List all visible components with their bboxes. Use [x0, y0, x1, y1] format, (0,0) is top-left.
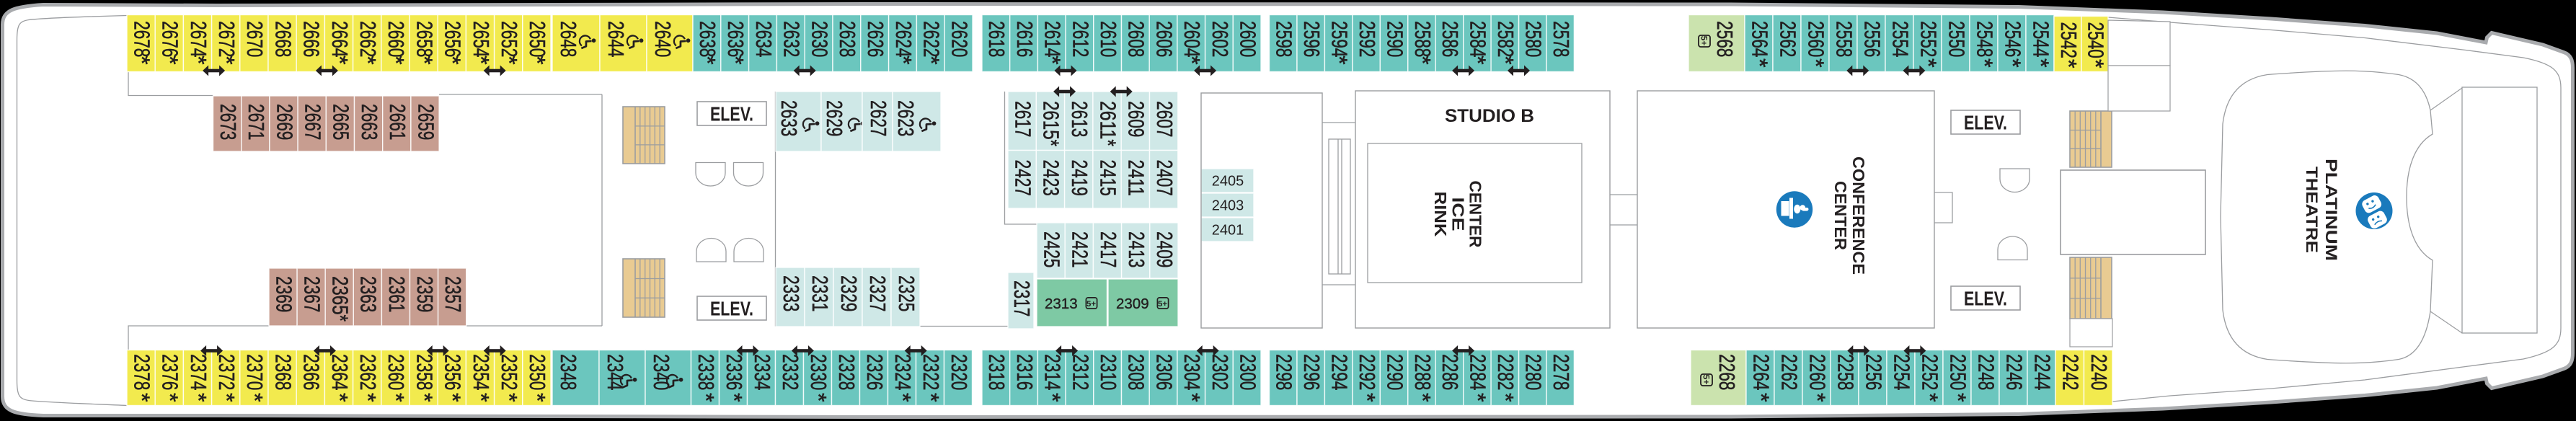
svg-text:*: *: [158, 393, 183, 402]
svg-text:2359: 2359: [412, 276, 438, 312]
svg-text:*: *: [158, 56, 183, 65]
svg-text:CENTER: CENTER: [1466, 181, 1485, 248]
svg-text:CONFERENCE: CONFERENCE: [1849, 156, 1868, 275]
svg-text:2620: 2620: [947, 21, 972, 57]
svg-text:2310: 2310: [1096, 354, 1121, 390]
svg-text:2632: 2632: [779, 21, 805, 57]
svg-text:2364: 2364: [327, 354, 353, 390]
svg-text:2334: 2334: [750, 354, 775, 390]
svg-text:2317: 2317: [1009, 280, 1035, 316]
svg-text:2290: 2290: [1382, 354, 1407, 390]
svg-text:2676: 2676: [158, 21, 183, 57]
svg-text:2659: 2659: [413, 104, 438, 140]
svg-text:2296: 2296: [1299, 354, 1324, 390]
svg-text:2325: 2325: [894, 275, 919, 311]
svg-text:2256: 2256: [1861, 354, 1886, 390]
svg-text:*: *: [919, 393, 944, 402]
svg-text:2365*: 2365*: [328, 276, 353, 322]
svg-text:2329: 2329: [836, 275, 862, 311]
svg-text:2309: 2309: [1116, 296, 1149, 312]
svg-text:2598: 2598: [1272, 21, 1297, 57]
svg-text:*: *: [1355, 393, 1380, 402]
svg-text:2419: 2419: [1067, 160, 1092, 196]
svg-text:5+: 5+: [1086, 300, 1096, 309]
svg-text:*: *: [384, 393, 409, 402]
svg-text:*: *: [2028, 58, 2053, 68]
svg-text:2258: 2258: [1833, 354, 1858, 390]
svg-text:2612: 2612: [1068, 21, 1093, 57]
svg-text:*: *: [497, 393, 522, 402]
svg-text:2403: 2403: [1212, 198, 1244, 214]
svg-text:2405: 2405: [1212, 174, 1244, 190]
svg-text:ELEV.: ELEV.: [710, 103, 753, 125]
svg-text:2558: 2558: [1831, 21, 1856, 57]
svg-text:2357: 2357: [441, 276, 466, 312]
svg-text:*: *: [129, 56, 154, 65]
svg-text:2672: 2672: [214, 21, 239, 57]
svg-text:2623: 2623: [893, 100, 919, 136]
svg-text:2667: 2667: [301, 104, 326, 140]
svg-text:2582: 2582: [1493, 21, 1518, 57]
svg-text:*: *: [441, 56, 466, 65]
svg-text:2322: 2322: [919, 354, 944, 390]
svg-text:2360: 2360: [384, 354, 409, 390]
svg-text:2328: 2328: [834, 354, 859, 390]
svg-text:2352: 2352: [497, 354, 522, 390]
svg-text:2244: 2244: [2030, 354, 2055, 390]
svg-text:STUDIO B: STUDIO B: [1445, 106, 1534, 126]
svg-text:*: *: [1179, 56, 1205, 65]
svg-text:2320: 2320: [947, 354, 972, 390]
svg-text:2664: 2664: [327, 21, 353, 57]
svg-text:2614: 2614: [1040, 21, 1066, 57]
svg-text:2627: 2627: [866, 100, 891, 136]
svg-text:2552: 2552: [1916, 21, 1941, 57]
svg-text:2240: 2240: [2086, 354, 2112, 390]
svg-text:2562: 2562: [1775, 21, 1800, 57]
svg-text:2331: 2331: [807, 275, 833, 311]
svg-text:*: *: [1493, 56, 1518, 65]
svg-text:ELEV.: ELEV.: [1964, 112, 2007, 134]
svg-text:*: *: [1917, 393, 1942, 402]
svg-text:2421: 2421: [1068, 231, 1093, 267]
svg-text:*: *: [1493, 393, 1518, 402]
svg-text:2356: 2356: [441, 354, 466, 390]
svg-text:2611*: 2611*: [1095, 101, 1120, 146]
svg-text:2669: 2669: [272, 104, 297, 140]
svg-text:2610: 2610: [1096, 21, 1121, 57]
svg-text:*: *: [469, 56, 494, 65]
svg-text:2300: 2300: [1236, 354, 1261, 390]
svg-text:2592: 2592: [1355, 21, 1380, 57]
svg-text:2542: 2542: [2056, 22, 2081, 58]
svg-text:2613: 2613: [1067, 101, 1092, 137]
svg-text:2401: 2401: [1212, 223, 1244, 239]
svg-text:2656: 2656: [441, 21, 466, 57]
svg-text:2652: 2652: [497, 21, 522, 57]
svg-text:2302: 2302: [1208, 354, 1233, 390]
svg-text:2670: 2670: [242, 21, 267, 57]
svg-text:2678: 2678: [129, 21, 154, 57]
svg-text:*: *: [525, 56, 550, 65]
svg-text:2427: 2427: [1011, 160, 1036, 196]
svg-text:2578: 2578: [1549, 21, 1574, 57]
svg-text:2361: 2361: [384, 276, 410, 312]
svg-text:2333: 2333: [779, 275, 804, 311]
svg-text:2606: 2606: [1151, 21, 1177, 57]
svg-text:2363: 2363: [356, 276, 381, 312]
svg-text:2248: 2248: [1973, 354, 1999, 390]
svg-text:2673: 2673: [216, 104, 241, 140]
svg-text:2292: 2292: [1355, 354, 1380, 390]
svg-text:2246: 2246: [2001, 354, 2027, 390]
svg-text:2638: 2638: [695, 21, 720, 57]
svg-text:2312: 2312: [1068, 354, 1093, 390]
svg-text:2633: 2633: [776, 100, 802, 136]
svg-text:*: *: [1748, 393, 1774, 402]
svg-text:2618: 2618: [984, 21, 1009, 57]
svg-text:2634: 2634: [751, 21, 776, 57]
svg-text:2608: 2608: [1124, 21, 1149, 57]
svg-text:*: *: [469, 393, 494, 402]
svg-text:2306: 2306: [1151, 354, 1177, 390]
svg-text:2556: 2556: [1859, 21, 1885, 57]
svg-text:2600: 2600: [1236, 21, 1261, 57]
svg-text:*: *: [2083, 59, 2108, 68]
svg-text:2376: 2376: [158, 354, 183, 390]
svg-text:2596: 2596: [1299, 21, 1324, 57]
svg-text:*: *: [1410, 56, 1435, 65]
svg-text:2350: 2350: [525, 354, 550, 390]
svg-text:2313: 2313: [1045, 296, 1078, 312]
svg-text:2588: 2588: [1410, 21, 1435, 57]
svg-text:2367: 2367: [300, 276, 325, 312]
svg-text:2298: 2298: [1272, 354, 1297, 390]
svg-text:2264: 2264: [1748, 354, 1774, 390]
svg-text:2423: 2423: [1039, 160, 1064, 196]
svg-text:2252: 2252: [1917, 354, 1942, 390]
svg-text:2654: 2654: [469, 21, 494, 57]
svg-text:*: *: [722, 393, 747, 402]
svg-text:*: *: [327, 393, 353, 402]
svg-text:2318: 2318: [984, 354, 1009, 390]
svg-text:2316: 2316: [1012, 354, 1037, 390]
svg-text:2324: 2324: [890, 354, 916, 390]
svg-text:*: *: [129, 393, 154, 402]
svg-text:ICE: ICE: [1448, 198, 1467, 231]
svg-text:2340: 2340: [649, 354, 674, 390]
svg-text:*: *: [214, 393, 239, 402]
svg-text:2362: 2362: [355, 354, 381, 390]
svg-text:2609: 2609: [1124, 101, 1149, 137]
svg-text:2660: 2660: [384, 21, 409, 57]
svg-text:2668: 2668: [270, 21, 296, 57]
svg-text:2348: 2348: [556, 354, 581, 390]
svg-text:2314: 2314: [1040, 354, 1066, 390]
svg-text:*: *: [1945, 393, 1970, 402]
svg-text:2374: 2374: [186, 354, 211, 390]
svg-text:2330: 2330: [806, 354, 831, 390]
svg-text:*: *: [1327, 56, 1352, 65]
svg-text:2284: 2284: [1466, 354, 1491, 390]
svg-text:*: *: [412, 56, 437, 65]
svg-text:ELEV.: ELEV.: [1964, 288, 2007, 310]
svg-text:2607: 2607: [1152, 101, 1177, 137]
svg-text:*: *: [1803, 58, 1828, 68]
svg-text:CENTER: CENTER: [1831, 181, 1850, 250]
svg-text:*: *: [806, 393, 831, 402]
svg-text:2590: 2590: [1382, 21, 1407, 57]
svg-text:*: *: [441, 393, 466, 402]
svg-text:2616: 2616: [1012, 21, 1037, 57]
svg-text:*: *: [355, 393, 381, 402]
svg-text:2648: 2648: [556, 21, 581, 57]
svg-text:2617: 2617: [1011, 101, 1036, 137]
svg-text:2640: 2640: [650, 21, 676, 57]
svg-text:2278: 2278: [1549, 354, 1574, 390]
svg-text:2370: 2370: [242, 354, 267, 390]
svg-text:2417: 2417: [1096, 231, 1121, 267]
svg-text:2326: 2326: [862, 354, 888, 390]
svg-text:2286: 2286: [1438, 354, 1463, 390]
svg-text:2604: 2604: [1179, 21, 1205, 57]
svg-text:2548: 2548: [1972, 21, 1997, 57]
svg-text:2425: 2425: [1039, 231, 1064, 267]
svg-text:*: *: [1972, 58, 1997, 68]
svg-text:*: *: [327, 56, 353, 65]
svg-text:5+: 5+: [1701, 375, 1711, 385]
svg-text:2327: 2327: [865, 275, 890, 311]
svg-text:2663: 2663: [357, 104, 382, 140]
svg-text:2674: 2674: [186, 21, 211, 57]
svg-text:2409: 2409: [1152, 231, 1177, 267]
svg-text:2666: 2666: [299, 21, 324, 57]
svg-text:*: *: [186, 393, 211, 402]
svg-text:2661: 2661: [385, 104, 410, 140]
svg-text:2671: 2671: [244, 104, 269, 140]
svg-text:2288: 2288: [1410, 354, 1435, 390]
svg-text:2658: 2658: [412, 21, 437, 57]
svg-text:*: *: [1747, 58, 1772, 68]
svg-text:*: *: [1040, 393, 1066, 402]
svg-text:2338: 2338: [694, 354, 719, 390]
svg-text:2554: 2554: [1887, 21, 1913, 57]
svg-text:*: *: [919, 56, 944, 65]
svg-text:*: *: [1179, 393, 1205, 402]
svg-text:ELEV.: ELEV.: [710, 298, 753, 320]
svg-text:*: *: [497, 56, 522, 65]
svg-text:2407: 2407: [1152, 160, 1177, 196]
svg-text:2546: 2546: [2000, 21, 2025, 57]
svg-text:2254: 2254: [1889, 354, 1914, 390]
svg-text:2560: 2560: [1803, 21, 1828, 57]
svg-text:*: *: [694, 393, 719, 402]
svg-text:*: *: [2000, 58, 2025, 68]
svg-text:2366: 2366: [299, 354, 324, 390]
svg-text:2294: 2294: [1327, 354, 1352, 390]
svg-text:2344: 2344: [603, 354, 628, 390]
svg-text:2564: 2564: [1747, 21, 1772, 57]
svg-text:*: *: [1466, 56, 1491, 65]
svg-text:2550: 2550: [1944, 21, 1969, 57]
svg-text:2260: 2260: [1805, 354, 1830, 390]
svg-text:2378: 2378: [129, 354, 154, 390]
svg-text:2629: 2629: [822, 100, 847, 136]
svg-text:THEATRE: THEATRE: [2303, 167, 2321, 253]
svg-text:2602: 2602: [1208, 21, 1233, 57]
svg-text:*: *: [695, 56, 720, 65]
svg-text:2304: 2304: [1179, 354, 1205, 390]
svg-text:2411: 2411: [1124, 160, 1149, 196]
svg-text:*: *: [384, 56, 409, 65]
svg-text:2544: 2544: [2028, 21, 2053, 57]
svg-text:2650: 2650: [525, 21, 550, 57]
svg-text:2262: 2262: [1776, 354, 1802, 390]
svg-text:*: *: [890, 393, 916, 402]
svg-text:2368: 2368: [270, 354, 296, 390]
svg-text:*: *: [242, 393, 267, 402]
svg-text:5+: 5+: [1699, 36, 1709, 46]
svg-text:2280: 2280: [1521, 354, 1546, 390]
svg-text:2665: 2665: [329, 104, 354, 140]
svg-text:2354: 2354: [469, 354, 494, 390]
svg-text:2586: 2586: [1438, 21, 1463, 57]
svg-text:2282: 2282: [1493, 354, 1518, 390]
svg-text:*: *: [186, 56, 211, 65]
svg-text:PLATINUM: PLATINUM: [2322, 159, 2340, 261]
svg-text:*: *: [723, 56, 748, 65]
svg-text:2336: 2336: [722, 354, 747, 390]
svg-text:2250: 2250: [1945, 354, 1970, 390]
svg-text:2644: 2644: [603, 21, 629, 57]
svg-text:*: *: [1410, 393, 1435, 402]
svg-text:2594: 2594: [1327, 21, 1352, 57]
svg-text:2615*: 2615*: [1039, 101, 1064, 146]
svg-text:RINK: RINK: [1431, 192, 1450, 237]
svg-text:2413: 2413: [1124, 231, 1149, 267]
svg-text:2622: 2622: [919, 21, 944, 57]
svg-text:*: *: [1466, 393, 1491, 402]
svg-text:2626: 2626: [863, 21, 888, 57]
svg-text:2369: 2369: [271, 276, 296, 312]
svg-text:*: *: [214, 56, 239, 65]
svg-text:2580: 2580: [1521, 21, 1546, 57]
svg-text:2358: 2358: [412, 354, 437, 390]
svg-text:5+: 5+: [1158, 300, 1167, 309]
svg-text:2242: 2242: [2058, 354, 2084, 390]
svg-text:2636: 2636: [723, 21, 748, 57]
svg-text:2540: 2540: [2083, 22, 2108, 58]
svg-text:2332: 2332: [778, 354, 803, 390]
svg-text:2624: 2624: [891, 21, 916, 57]
svg-text:2628: 2628: [835, 21, 860, 57]
svg-text:2662: 2662: [355, 21, 381, 57]
svg-text:*: *: [355, 56, 381, 65]
svg-text:2568: 2568: [1712, 21, 1738, 57]
svg-text:2630: 2630: [807, 21, 832, 57]
svg-text:*: *: [891, 56, 916, 65]
svg-text:*: *: [525, 393, 550, 402]
svg-text:*: *: [2056, 59, 2081, 68]
svg-text:2308: 2308: [1124, 354, 1149, 390]
svg-text:*: *: [412, 393, 437, 402]
svg-text:*: *: [1805, 393, 1830, 402]
svg-text:2415: 2415: [1095, 160, 1120, 196]
svg-text:*: *: [1040, 56, 1066, 65]
svg-text:2584: 2584: [1466, 21, 1491, 57]
svg-text:2372: 2372: [214, 354, 239, 390]
svg-text:2268: 2268: [1714, 354, 1740, 390]
